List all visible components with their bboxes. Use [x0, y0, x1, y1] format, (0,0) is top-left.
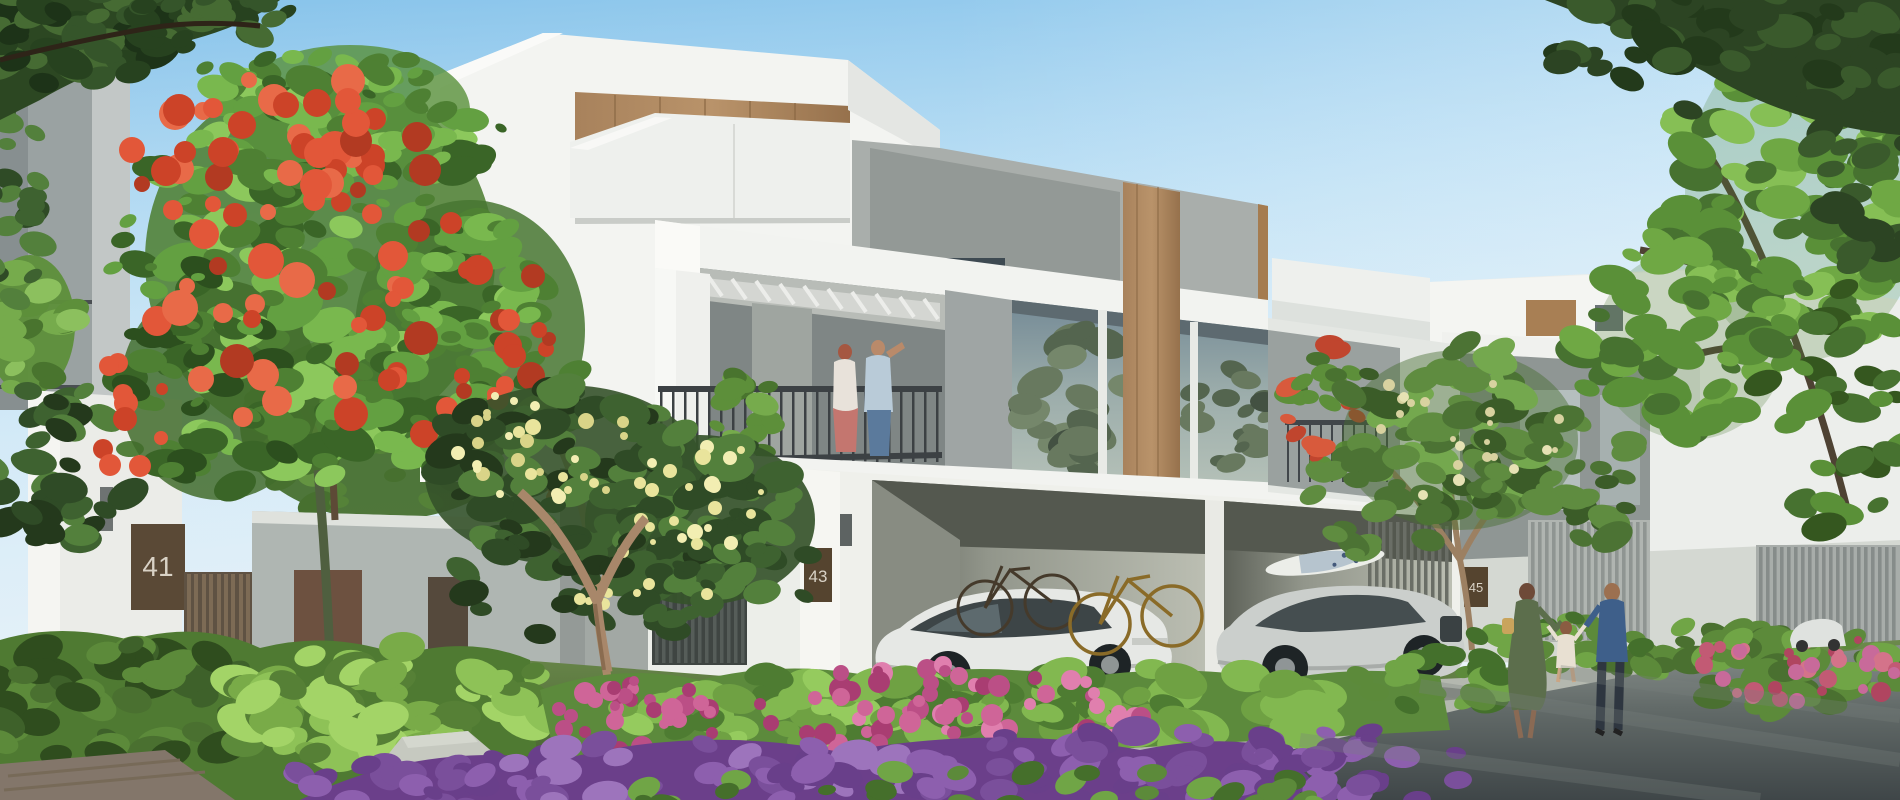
svg-text:41: 41 — [142, 551, 173, 582]
svg-text:45: 45 — [1469, 580, 1483, 595]
svg-text:43: 43 — [809, 567, 828, 586]
